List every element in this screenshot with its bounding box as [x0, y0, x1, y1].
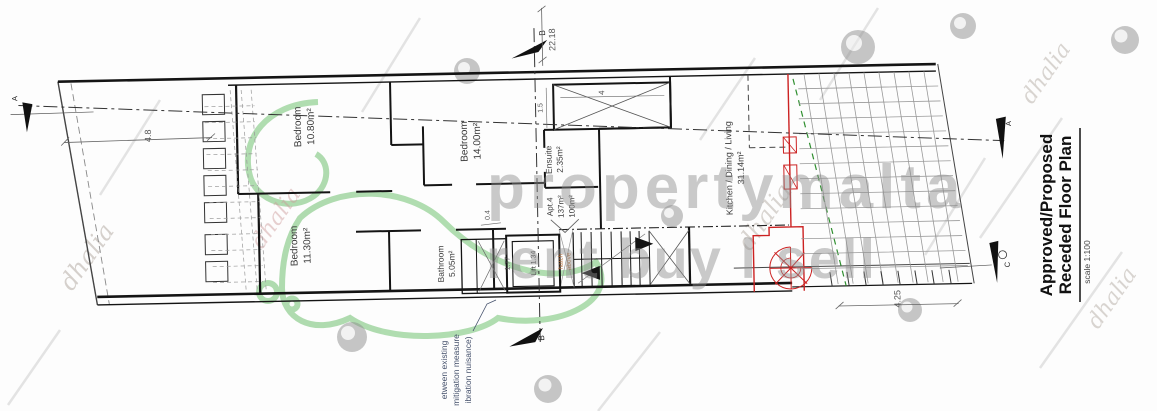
note-line1: etween existing — [439, 340, 449, 399]
title-block: Approved/Proposed Receded Floor Plan sca… — [1037, 128, 1092, 302]
dim-terrace: 4.25 — [892, 290, 902, 308]
section-letter: B — [536, 335, 546, 341]
room-area-bedroom3: 11.30m² — [302, 227, 314, 264]
kitchen-beam-dashed — [748, 74, 787, 148]
floor-plan-drawing: dhalia dhalia dhalia dhalia dhalia — [0, 0, 1157, 411]
brand-watermark-line1: propertymalta — [487, 153, 965, 222]
section-letter: A — [1004, 121, 1013, 126]
dim-overall: 22.18 — [547, 28, 557, 51]
floor-plan-sheet: dhalia dhalia dhalia dhalia dhalia — [0, 0, 1157, 411]
room-area-bedroom2: 14.00m² — [472, 122, 484, 160]
dim-shaft-length: 4 — [597, 90, 606, 95]
dhalia-script-text: dhalia — [54, 218, 120, 295]
room-label-bedroom2: Bedroom — [459, 121, 471, 162]
brand-watermark: propertymalta rent buy l sell — [486, 153, 965, 290]
room-area-bedroom1: 10.80m² — [306, 107, 318, 145]
section-marker-a-right: A — [996, 116, 1014, 158]
section-line-a — [18, 86, 1004, 161]
title-line1: Approved/Proposed — [1037, 134, 1056, 296]
room-label-bedroom1: Bedroom — [292, 106, 304, 147]
shaft — [553, 76, 671, 129]
section-letter: A — [10, 96, 19, 101]
dim-front: 4.8 — [143, 130, 153, 143]
note-line2: mitigation measure — [451, 334, 461, 406]
room-label-bedroom3: Bedroom — [289, 226, 301, 267]
mitigation-note: etween existing mitigation measure ibrat… — [439, 300, 496, 406]
section-marker-b-bottom: B — [509, 328, 546, 347]
section-marker-a-left: A — [10, 94, 94, 132]
section-letter: C — [1003, 261, 1012, 267]
title-line2: Receded Floor Plan — [1056, 136, 1075, 295]
title-scale: scale 1:100 — [1082, 240, 1092, 284]
room-label-bathroom: Bathroom — [435, 245, 446, 282]
note-line3: ibration nuisance) — [463, 336, 473, 403]
brand-watermark-line2: rent buy l sell — [486, 227, 877, 290]
dim-shaft-width: 1.5 — [537, 103, 544, 113]
room-area-bathroom: 5.05m² — [446, 250, 457, 277]
dhalia-script-text: dhalia — [1016, 38, 1076, 109]
